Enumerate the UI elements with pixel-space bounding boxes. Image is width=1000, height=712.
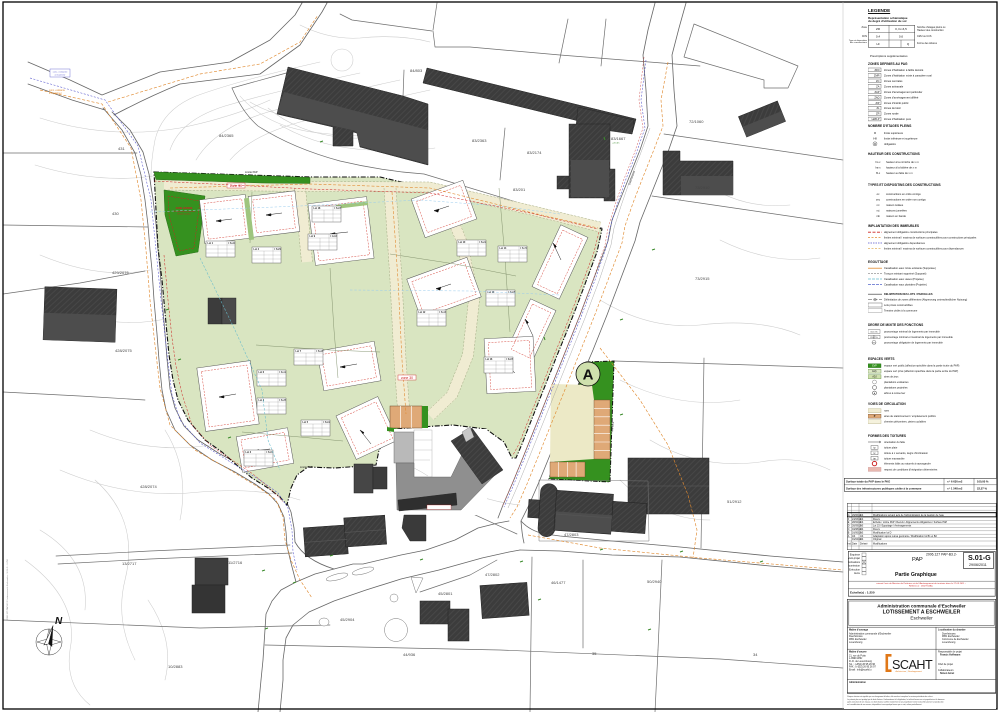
svg-text:428/2075: 428/2075	[115, 348, 132, 353]
svg-text:431: 431	[118, 146, 125, 151]
svg-text:min x%: min x%	[870, 332, 877, 334]
svg-text:II: II	[874, 131, 876, 135]
svg-text:ou la modification de son oeuv: ou la modification de son oeuvre, dispon…	[847, 703, 922, 706]
svg-text:Lot 16: Lot 16	[486, 358, 493, 361]
svg-text:Partie Graphique: Partie Graphique	[895, 572, 937, 578]
svg-text:II: II	[874, 142, 876, 146]
svg-text:72/1060: 72/1060	[689, 119, 704, 124]
svg-text:chemins piétonniers, pistes cy: chemins piétonniers, pistes cyclables	[884, 419, 927, 423]
svg-text:ZA: ZA	[876, 84, 880, 88]
svg-text:Zones d'habitation pure: Zones d'habitation pure	[884, 117, 912, 121]
svg-text:suivant l'avis du Ministre de: suivant l'avis du Ministre de l'Intérieu…	[876, 582, 966, 585]
svg-text:Lot 5: Lot 5	[303, 421, 309, 424]
svg-text:Lots privés constructibles: Lots privés constructibles	[884, 303, 913, 307]
svg-text:Zones artisanale: Zones artisanale	[884, 84, 904, 88]
svg-text:HI: HI	[877, 42, 880, 46]
svg-text:Esquisse: Esquisse	[850, 554, 861, 557]
svg-text:Référence : 16327/12AC: Référence : 16327/12AC	[909, 585, 933, 588]
svg-text:pourcentage minimal de logemen: pourcentage minimal de logements par imm…	[884, 330, 940, 334]
svg-text:± 5a05: ± 5a05	[334, 208, 342, 210]
svg-text:ZONE HUMIDE: ZONE HUMIDE	[176, 207, 193, 210]
svg-text:Architecture | Développement: Architecture | Développement	[896, 670, 923, 673]
svg-text:± 5a16: ± 5a16	[439, 312, 447, 314]
svg-text:hauteur à la corniche de x m: hauteur à la corniche de x m	[886, 160, 919, 164]
svg-text:maisons jumelées: maisons jumelées	[886, 208, 907, 212]
svg-text:respect de conditions d'intégr: respect de conditions d'intégration déte…	[884, 467, 938, 471]
svg-text:alignement obligatoire constru: alignement obligatoire constructions pri…	[884, 230, 938, 234]
svg-text:N: N	[55, 616, 63, 627]
svg-text:plantations existantes: plantations existantes	[884, 380, 909, 384]
svg-text:hc-x: hc-x	[876, 160, 882, 164]
svg-text:tm: tm	[873, 457, 876, 460]
svg-text:Administration communale d'Esc: Administration communale d'Eschweiler	[877, 604, 966, 609]
svg-text:Localisation du chantier: Localisation du chantier	[938, 628, 966, 631]
svg-text:Lot 2: Lot 2	[254, 248, 260, 251]
svg-text:Canalisation eaux pluviales (P: Canalisation eaux pluviales (Projetée)	[884, 282, 927, 286]
svg-text:G: G	[848, 514, 850, 517]
svg-text:SCAHT: SCAHT	[892, 658, 933, 672]
svg-text:± 6a12: ± 6a12	[279, 372, 287, 374]
svg-text:Lot 6: Lot 6	[259, 371, 265, 374]
svg-text:Surface totale du PAP dans le: Surface totale du PAP dans le PAG	[846, 480, 890, 484]
svg-text:46/1477: 46/1477	[551, 580, 566, 585]
svg-text:Lot 12: Lot 12	[419, 311, 426, 314]
svg-text:Soumission: Soumission	[848, 565, 861, 568]
svg-text:+/- 1 548 m2: +/- 1 548 m2	[947, 486, 963, 490]
svg-text:± 5a89: ± 5a89	[274, 249, 282, 251]
svg-text:X% Y%: X% Y%	[870, 337, 877, 339]
svg-text:arbres à conserver: arbres à conserver	[884, 391, 905, 395]
svg-text:0,6: 0,6	[899, 34, 904, 38]
svg-text:84/2365: 84/2365	[219, 133, 234, 138]
svg-text:A: A	[583, 367, 594, 384]
svg-text:aires de stationnement / empla: aires de stationnement / emplacement pub…	[884, 414, 937, 418]
svg-text:2006.127 PAP-B3.2-: 2006.127 PAP-B3.2-	[926, 553, 957, 557]
svg-text:Dréssé: Dréssé	[860, 542, 868, 545]
svg-text:± 5a35: ± 5a35	[279, 400, 287, 402]
svg-text:AS: AS	[860, 538, 864, 541]
svg-text:428/2074: 428/2074	[140, 484, 157, 489]
svg-text:Zones d'intérêt public: Zones d'intérêt public	[884, 100, 909, 104]
svg-text:alignement obligatoire dépenda: alignement obligatoire dépendances	[884, 241, 926, 245]
svg-text:83/2174: 83/2174	[527, 150, 542, 155]
svg-text:84/803: 84/803	[410, 68, 423, 73]
svg-text:Luxembourg: Luxembourg	[849, 641, 863, 644]
svg-text:maison isolées: maison isolées	[886, 203, 904, 207]
svg-text:35: 35	[592, 651, 597, 656]
svg-text:DELIMITATION DES LOTS / PARCEL: DELIMITATION DES LOTS / PARCELLES	[884, 292, 933, 296]
svg-text:toiture à x versants, degré d': toiture à x versants, degré d'inclinaiso…	[884, 451, 929, 455]
svg-text:toiture plate: toiture plate	[884, 446, 898, 450]
svg-text:Lot 18: Lot 18	[314, 207, 321, 210]
svg-text:Original: Original	[873, 538, 882, 541]
svg-text:Récuperation et rétention: Récuperation et rétention	[173, 210, 195, 213]
svg-text:429/2076: 429/2076	[112, 270, 129, 275]
svg-text:conc. existante: conc. existante	[53, 71, 68, 74]
svg-text:Lot 1: Lot 1	[208, 242, 214, 245]
svg-text:Lot 14: Lot 14	[500, 247, 507, 250]
svg-text:13/2717: 13/2717	[122, 561, 137, 566]
svg-text:Zones d'habitation mixte à car: Zones d'habitation mixte à caractère rur…	[884, 73, 932, 77]
svg-text:Simon Arnet: Simon Arnet	[940, 672, 954, 675]
svg-text:± 5a70: ± 5a70	[520, 248, 528, 250]
svg-text:limites minimal / maxima de su: limites minimal / maxima de surfaces con…	[884, 236, 977, 240]
svg-text:hauteur à la faîtière de x m: hauteur à la faîtière de x m	[886, 166, 917, 170]
svg-text:± 5a48: ± 5a48	[316, 351, 324, 353]
svg-text:Exécution: Exécution	[849, 568, 861, 571]
svg-text:aires de jeux: aires de jeux	[884, 374, 899, 378]
svg-text:rues: rues	[884, 408, 890, 412]
svg-text:Maître d'oeuvre: Maître d'oeuvre	[849, 650, 867, 653]
svg-text:44/936: 44/936	[403, 652, 416, 657]
svg-text:83/1667: 83/1667	[611, 136, 626, 141]
svg-text:Zones de loisir: Zones de loisir	[884, 106, 901, 110]
svg-text:hauteur au faîte de x m: hauteur au faîte de x m	[886, 171, 913, 175]
svg-text:Autre: Autre	[854, 572, 861, 575]
svg-text:83/201: 83/201	[513, 187, 526, 192]
svg-text:± 5a40: ± 5a40	[228, 243, 236, 245]
svg-text:Zones d'habitation à faible de: Zones d'habitation à faible densité	[884, 68, 924, 72]
svg-text:+20 dm: +20 dm	[612, 143, 620, 145]
svg-text:limites minimal / maxima de su: limites minimal / maxima de surfaces con…	[884, 246, 964, 250]
svg-text:Avant-projet: Avant-projet	[848, 557, 860, 560]
svg-text:Eschweiler: Eschweiler	[910, 616, 933, 621]
svg-text:hf-x: hf-x	[876, 171, 881, 175]
svg-text:ZAD: ZAD	[874, 95, 879, 99]
svg-text:X%: X%	[872, 342, 875, 344]
svg-text:Luxembourg: Luxembourg	[942, 641, 956, 644]
svg-text:2006.127 PAP-B3.2 Lotissement: 2006.127 PAP-B3.2 Lotissement à Eschweil…	[6, 558, 9, 620]
svg-text:50/2940: 50/2940	[647, 579, 662, 584]
svg-text:Lot 3: Lot 3	[246, 451, 252, 454]
svg-text:mi: mi	[877, 203, 880, 207]
svg-text:Chaque révision est signifiée: Chaque révision est signifiée par un cha…	[847, 695, 934, 698]
svg-text:constructions en ordre non con: constructions en ordre non contigu	[886, 197, 926, 201]
svg-text:+/- 6 630 m2: +/- 6 630 m2	[947, 480, 963, 484]
svg-text:ADJ: ADJ	[872, 375, 876, 378]
svg-text:Canalisation eaux usées (Proje: Canalisation eaux usées (Projetée)	[884, 277, 924, 281]
svg-text:Lot 13: Lot 13	[488, 291, 495, 294]
svg-text:ha-x: ha-x	[875, 166, 881, 170]
svg-text:± 8a65: ± 8a65	[506, 359, 514, 361]
svg-text:à supprimer: à supprimer	[49, 92, 62, 95]
svg-text:Lot 7: Lot 7	[296, 350, 302, 353]
svg-text:II, hc-6,5: II, hc-6,5	[895, 27, 907, 31]
svg-text:Limite PAP: Limite PAP	[300, 465, 313, 469]
svg-text:espace vert privé (affection s: espace vert privé (affection spécifiée d…	[884, 369, 958, 373]
svg-text:oc: oc	[877, 193, 880, 196]
svg-text:45/2904: 45/2904	[340, 617, 355, 622]
svg-text:Canalisation eaux mixte exista: Canalisation eaux mixte existante (Suppo…	[884, 266, 936, 270]
svg-text:Zones d'aménagement différé: Zones d'aménagement différé	[884, 95, 919, 99]
svg-text:d'eaux de pluie: d'eaux de pluie	[177, 214, 191, 216]
svg-text:Terrains cédés à la commune: Terrains cédés à la commune	[884, 308, 918, 312]
svg-text:EVP: EVP	[872, 365, 877, 367]
svg-text:limite inférieure et supérieur: limite inférieure et supérieure	[884, 137, 918, 141]
svg-text:34: 34	[753, 652, 758, 657]
svg-text:zone 30: zone 30	[401, 376, 413, 380]
svg-text:29/06/2011: 29/06/2011	[969, 563, 987, 567]
svg-text:Maître d'ouvrage: Maître d'ouvrage	[849, 628, 869, 631]
svg-text:ZAP: ZAP	[874, 89, 879, 93]
svg-text:zone 30: zone 30	[230, 184, 242, 188]
svg-text:obligatoire: obligatoire	[884, 142, 897, 146]
svg-text:Date: Date	[852, 542, 858, 545]
svg-text:100,00 %: 100,00 %	[977, 480, 989, 484]
svg-text:Lot 9: Lot 9	[310, 235, 316, 238]
svg-text:espace vert public (affection: espace vert public (affection spécifiée …	[884, 363, 960, 367]
svg-text:pourcentage minimal et maximal: pourcentage minimal et maximal de logeme…	[884, 335, 953, 339]
svg-text:Adaptation après relevé géomèt: Adaptation après relevé géomètre / Modif…	[873, 534, 937, 537]
svg-text:Lot 4: Lot 4	[259, 399, 265, 402]
svg-text:ZFD: ZFD	[874, 68, 879, 72]
svg-text:± 5a22: ± 5a22	[479, 242, 487, 244]
svg-text:orientation du faîte: orientation du faîte	[884, 440, 906, 444]
svg-text:Zones centrales: Zones centrales	[884, 79, 903, 83]
svg-text:mb: mb	[876, 213, 880, 217]
svg-text:plantations projetées: plantations projetées	[884, 385, 908, 389]
svg-text:HAB-P: HAB-P	[872, 117, 880, 121]
svg-text:limite supérieure: limite supérieure	[884, 131, 904, 135]
svg-text:430: 430	[112, 211, 119, 216]
svg-text:73/2915: 73/2915	[695, 276, 710, 281]
svg-text:Modifications: Modifications	[873, 542, 888, 545]
svg-text:PAP: PAP	[912, 557, 923, 563]
svg-text:Délimitation de zones différen: Délimitation de zones différentes (Abgre…	[884, 298, 967, 302]
svg-text:73/2910: 73/2910	[695, 185, 710, 190]
svg-text:Email : info@scaht.lu: Email : info@scaht.lu	[849, 668, 872, 671]
svg-text:Francis Hoffmann: Francis Hoffmann	[940, 654, 961, 657]
svg-text:± 5a02: ± 5a02	[323, 422, 331, 424]
svg-text:S.01-G: S.01-G	[968, 553, 991, 562]
svg-text:22,57 %: 22,57 %	[977, 486, 987, 490]
svg-text:maison en bande: maison en bande	[886, 213, 906, 217]
svg-text:Tronçon existant supprimé (Sup: Tronçon existant supprimé (Supposé)	[884, 271, 927, 275]
svg-text:ZR: ZR	[876, 111, 880, 115]
svg-text:ZIP: ZIP	[875, 100, 879, 104]
svg-text:EVp: EVp	[872, 371, 877, 373]
svg-text:Limite PAP: Limite PAP	[245, 170, 258, 174]
svg-text:51/2912: 51/2912	[727, 499, 742, 504]
svg-text:pourcentage obligatoire de log: pourcentage obligatoire de logements par…	[884, 340, 943, 344]
svg-text:± 5a60: ± 5a60	[266, 452, 274, 454]
svg-text:Lot 10: Lot 10	[459, 241, 466, 244]
svg-text:83/2363: 83/2363	[472, 138, 487, 143]
svg-text:Echelle(s) : 1:250: Echelle(s) : 1:250	[850, 591, 875, 595]
svg-text:constructions en ordre contigu: constructions en ordre contigu	[886, 192, 921, 196]
svg-text:Administration: Administration	[849, 681, 866, 684]
svg-text:éléments bâtis ou naturels à s: éléments bâtis ou naturels à sauvegarder	[884, 462, 931, 466]
svg-text:47/2802: 47/2802	[485, 572, 500, 577]
svg-text:Zones rurale: Zones rurale	[884, 111, 899, 115]
svg-text:à maintenir: à maintenir	[55, 74, 66, 77]
svg-text:10/2883: 10/2883	[168, 664, 183, 669]
svg-text:11/2716: 11/2716	[228, 560, 243, 565]
svg-text:I-II: I-II	[873, 137, 876, 141]
svg-text:AS: AS	[860, 514, 864, 517]
svg-text:Surface des infrastructures pu: Surface des infrastructures publiques cé…	[846, 486, 922, 490]
svg-text:47/2803: 47/2803	[564, 532, 579, 537]
svg-text:onc: onc	[876, 198, 881, 201]
svg-text:mj: mj	[877, 208, 880, 212]
svg-text:Zones d'aménagement particulie: Zones d'aménagement particulier	[884, 89, 923, 93]
svg-text:0,4: 0,4	[876, 34, 881, 38]
svg-text:45/2801: 45/2801	[438, 591, 453, 596]
svg-text:Autorisations: Autorisations	[848, 561, 861, 564]
svg-text:toiture mansardée: toiture mansardée	[884, 456, 905, 460]
svg-text:ZC: ZC	[876, 79, 880, 83]
svg-text:ZMR: ZMR	[874, 73, 880, 77]
svg-text:Modifications suivant avis de: Modifications suivant avis de l'Administ…	[873, 514, 945, 517]
svg-text:± 4a93: ± 4a93	[330, 236, 338, 238]
